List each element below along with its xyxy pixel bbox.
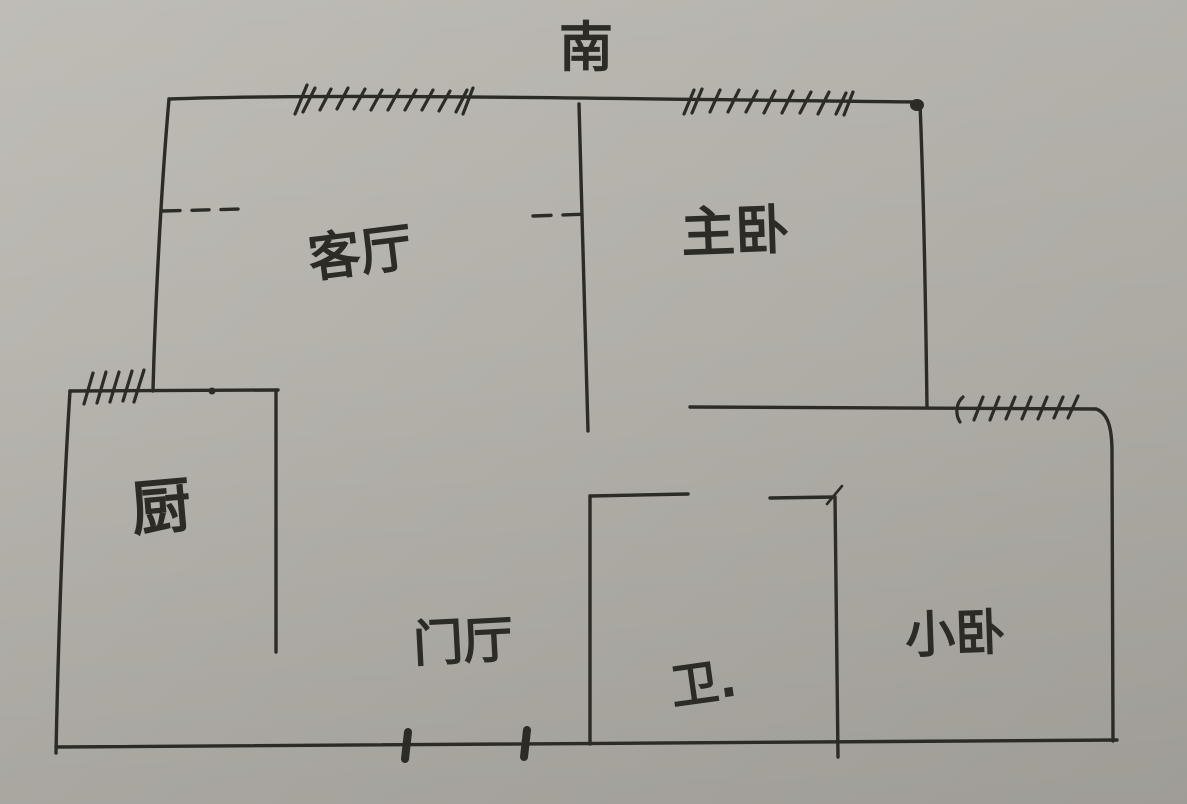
floorplan-sketch: 南 客厅 主卧 厨 门厅 卫. 小卧 bbox=[0, 0, 1187, 804]
room-label-kitchen: 厨 bbox=[128, 471, 194, 546]
wall-kitchen-left bbox=[56, 391, 70, 753]
wall-bathroom-top-right bbox=[770, 497, 834, 498]
dashed-opening-middle bbox=[533, 214, 590, 216]
wall-divider-living-master bbox=[579, 104, 588, 431]
room-label-living-room: 客厅 bbox=[305, 218, 416, 290]
wall-left-upper bbox=[153, 99, 169, 391]
room-labels-group: 南 客厅 主卧 厨 门厅 卫. 小卧 bbox=[128, 16, 1006, 716]
pen-dot bbox=[209, 388, 216, 395]
dashed-opening-left bbox=[163, 209, 242, 211]
wall-right-small-bedroom bbox=[1096, 409, 1113, 741]
corner-ink-blob bbox=[910, 99, 924, 111]
wall-middle-horizontal bbox=[690, 407, 1096, 409]
door-tick-entry-right bbox=[524, 730, 527, 757]
wall-bathroom-right bbox=[835, 497, 838, 757]
wall-bathroom-top-left bbox=[590, 494, 688, 496]
room-label-bathroom: 卫. bbox=[667, 652, 740, 717]
wall-right-master bbox=[920, 104, 927, 407]
window-hatch-south-left bbox=[295, 85, 473, 114]
room-label-master-bedroom: 主卧 bbox=[680, 198, 790, 265]
floorplan-drawing: 南 客厅 主卧 厨 门厅 卫. 小卧 bbox=[0, 0, 1187, 804]
door-tick-entry-left bbox=[405, 732, 408, 759]
window-hatch-kitchen bbox=[84, 370, 144, 404]
room-label-entry-hall: 门厅 bbox=[412, 610, 515, 673]
wall-bottom bbox=[56, 740, 1117, 747]
compass-south-label: 南 bbox=[559, 16, 613, 79]
room-label-small-bedroom: 小卧 bbox=[904, 603, 1006, 664]
